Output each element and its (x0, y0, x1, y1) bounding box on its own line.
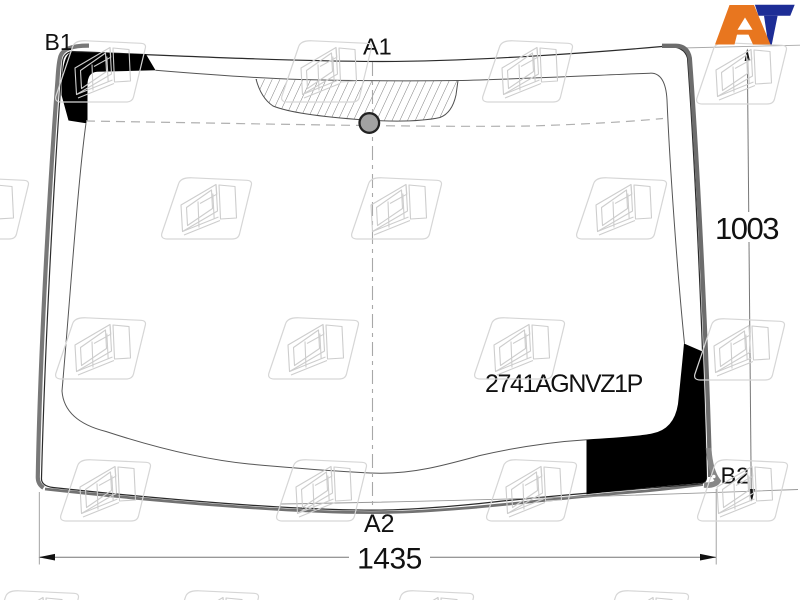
svg-text:1003: 1003 (715, 211, 778, 246)
svg-text:A2: A2 (364, 510, 395, 538)
svg-text:A1: A1 (363, 34, 392, 60)
svg-text:2741AGNVZ1P: 2741AGNVZ1P (485, 370, 643, 398)
svg-text:B1: B1 (45, 29, 73, 55)
svg-text:B2: B2 (721, 463, 750, 489)
svg-text:1435: 1435 (357, 543, 422, 576)
